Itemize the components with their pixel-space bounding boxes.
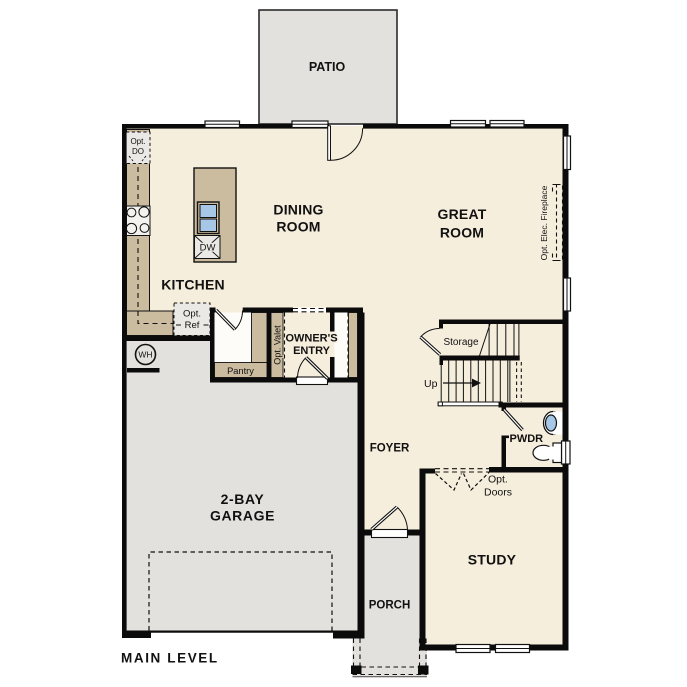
svg-text:Opt. Valet: Opt. Valet bbox=[273, 325, 283, 365]
svg-text:OWNER'S: OWNER'S bbox=[285, 333, 337, 345]
svg-text:Up: Up bbox=[424, 378, 438, 390]
svg-text:ROOM: ROOM bbox=[276, 219, 320, 235]
svg-text:PWDR: PWDR bbox=[510, 433, 544, 445]
svg-text:Opt. Elec. Fireplace: Opt. Elec. Fireplace bbox=[539, 185, 549, 260]
svg-text:Doors: Doors bbox=[484, 487, 512, 499]
svg-text:2-BAY: 2-BAY bbox=[221, 491, 265, 507]
svg-text:GREAT: GREAT bbox=[438, 206, 487, 222]
svg-text:PORCH: PORCH bbox=[369, 600, 411, 612]
svg-text:PATIO: PATIO bbox=[309, 60, 346, 74]
svg-text:WH: WH bbox=[138, 350, 152, 360]
svg-text:GARAGE: GARAGE bbox=[210, 508, 275, 524]
svg-text:Pantry: Pantry bbox=[227, 366, 254, 376]
svg-text:Opt.: Opt. bbox=[183, 309, 201, 320]
svg-text:KITCHEN: KITCHEN bbox=[161, 277, 225, 293]
svg-text:ROOM: ROOM bbox=[440, 225, 484, 241]
svg-text:DW: DW bbox=[200, 243, 216, 254]
svg-text:MAIN LEVEL: MAIN LEVEL bbox=[121, 651, 219, 666]
svg-text:Storage: Storage bbox=[443, 337, 478, 348]
svg-text:Opt.: Opt. bbox=[488, 474, 508, 486]
svg-text:FOYER: FOYER bbox=[370, 443, 410, 455]
svg-text:DINING: DINING bbox=[273, 202, 323, 218]
svg-text:Ref: Ref bbox=[185, 320, 200, 331]
svg-text:ENTRY: ENTRY bbox=[293, 345, 331, 357]
svg-text:DO: DO bbox=[132, 147, 144, 156]
svg-text:STUDY: STUDY bbox=[468, 552, 517, 568]
svg-text:Opt.: Opt. bbox=[130, 137, 145, 146]
